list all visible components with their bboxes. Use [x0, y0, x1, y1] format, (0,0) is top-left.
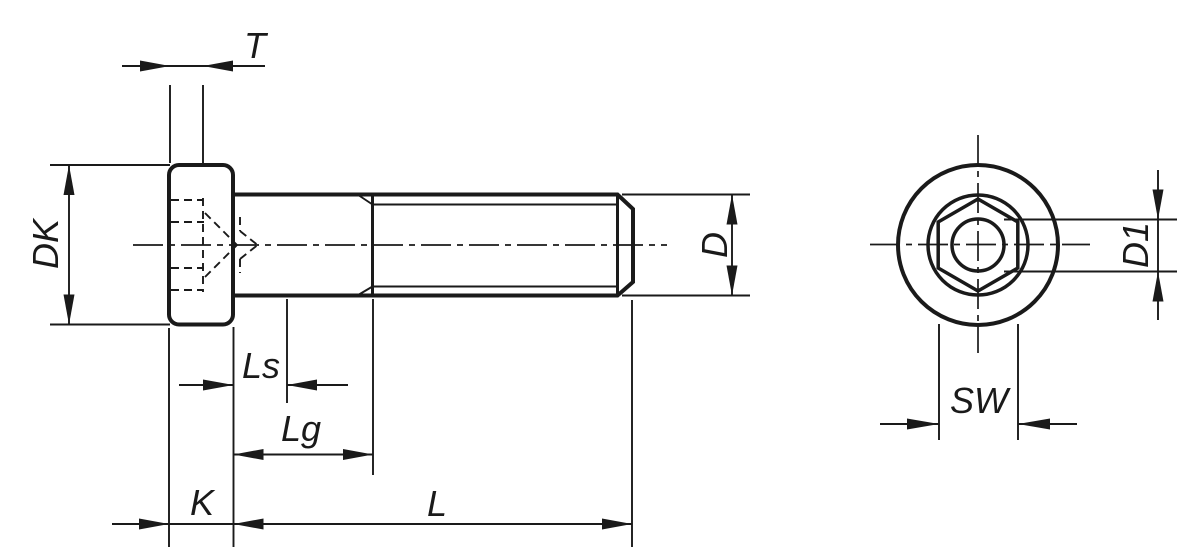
side-view: T DK D Ls [25, 25, 750, 547]
dimension-label-d1: D1 [1115, 222, 1156, 268]
arrowhead [907, 419, 939, 430]
arrowhead [64, 165, 75, 195]
arrowhead [602, 519, 632, 530]
dimension-t: T [122, 25, 269, 163]
end-view: D1 SW [870, 135, 1177, 440]
arrowhead [140, 61, 170, 72]
dimension-label-l: L [427, 483, 447, 524]
dimension-label-d: D [694, 232, 735, 258]
extension-line [170, 85, 203, 163]
extension-line [169, 300, 632, 547]
technical-drawing-page: T DK D Ls [0, 0, 1200, 552]
arrowhead [727, 195, 738, 225]
dimension-ls: Ls [179, 299, 348, 403]
dimension-k-l: K L [112, 300, 632, 547]
arrowhead [343, 449, 373, 460]
arrowhead [287, 380, 317, 391]
arrowhead [203, 61, 233, 72]
dimension-label-t: T [244, 25, 269, 66]
arrowhead [64, 295, 75, 325]
dimension-label-dk: DK [25, 217, 66, 269]
arrowhead [1153, 190, 1164, 220]
arrowhead [727, 266, 738, 296]
arrowhead [1153, 272, 1164, 302]
screw-technical-drawing: T DK D Ls [0, 0, 1200, 552]
dimension-label-sw: SW [950, 380, 1011, 421]
dimension-label-ls: Ls [242, 345, 280, 386]
arrowhead [1018, 419, 1050, 430]
arrowhead [203, 380, 234, 391]
arrowhead [139, 519, 169, 530]
dimension-label-lg: Lg [281, 408, 321, 449]
dimension-label-k: K [190, 482, 216, 523]
arrowhead [234, 519, 264, 530]
arrowhead [234, 449, 264, 460]
